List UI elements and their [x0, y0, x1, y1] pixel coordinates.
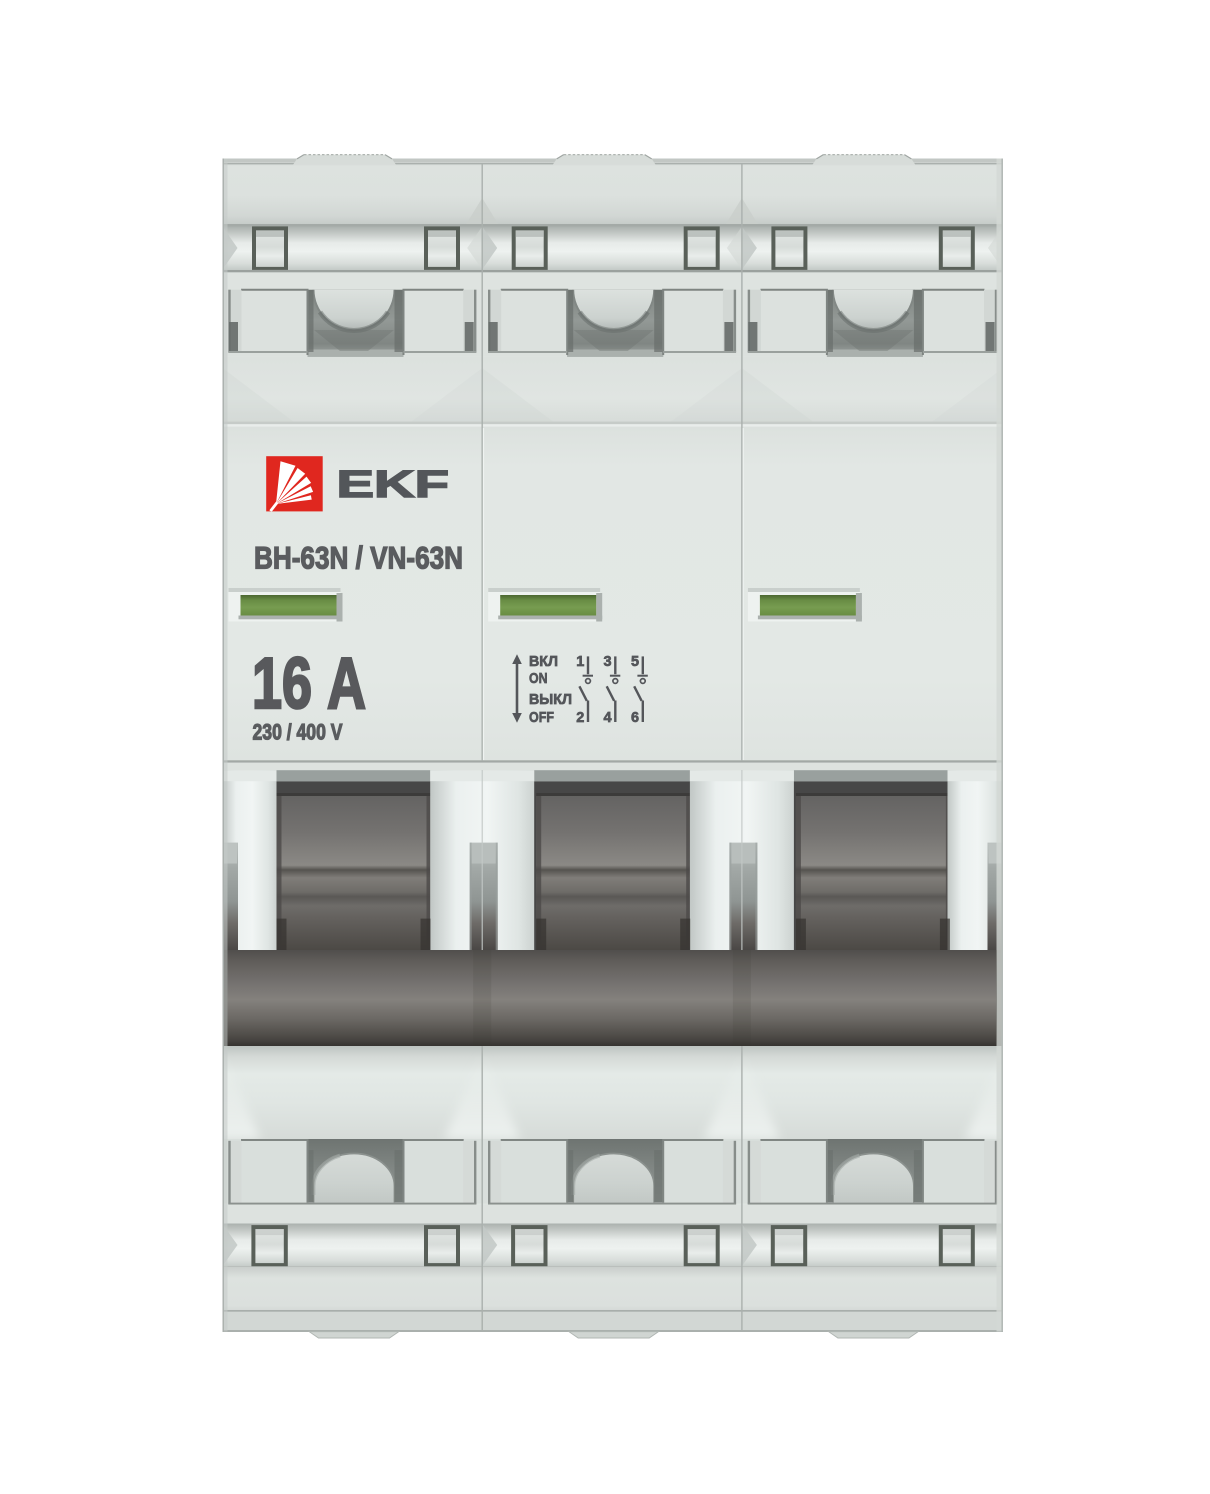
- svg-text:6: 6: [631, 710, 639, 726]
- svg-text:1: 1: [576, 654, 584, 670]
- svg-text:2: 2: [576, 710, 584, 726]
- svg-text:ON: ON: [529, 671, 548, 687]
- svg-text:230 / 400 V: 230 / 400 V: [253, 720, 343, 745]
- svg-text:5: 5: [631, 654, 639, 670]
- svg-text:OFF: OFF: [529, 710, 554, 726]
- svg-text:ВЫКЛ: ВЫКЛ: [529, 692, 572, 708]
- svg-text:16 А: 16 А: [252, 643, 366, 724]
- svg-text:3: 3: [604, 654, 612, 670]
- svg-text:EKF: EKF: [337, 463, 450, 506]
- svg-text:ВКЛ: ВКЛ: [529, 654, 558, 670]
- svg-text:ВН-63N / VN-63N: ВН-63N / VN-63N: [254, 540, 463, 576]
- svg-text:4: 4: [604, 710, 612, 726]
